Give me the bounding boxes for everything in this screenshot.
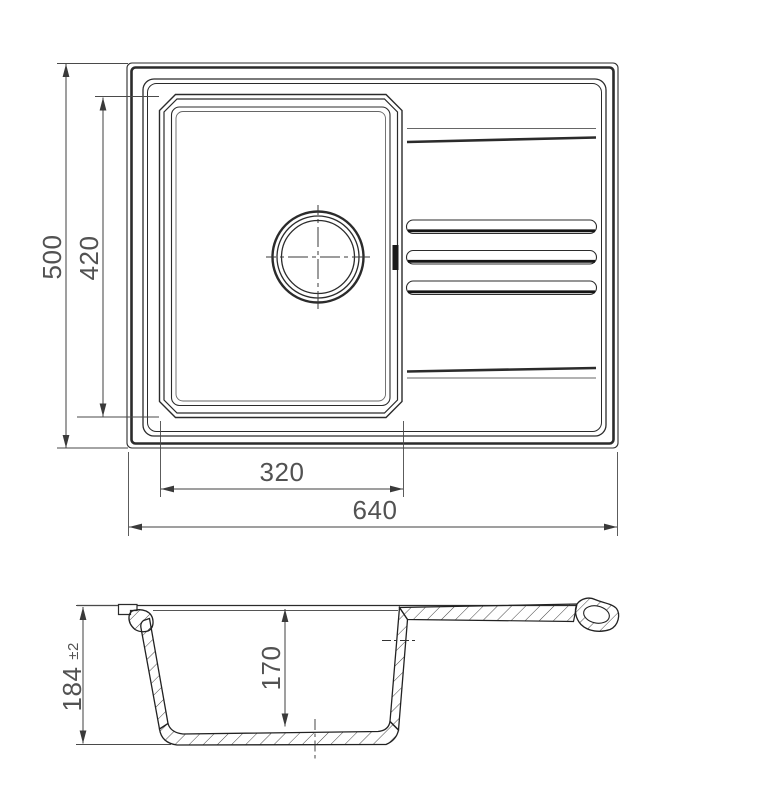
dim-label-500: 500 [37,235,67,280]
arrowhead [100,98,107,111]
arrowhead [80,731,87,744]
section-view: 184 ±2 170 [57,598,619,759]
arrowhead [282,714,289,727]
sink-technical-drawing: 500 420 320 640 [0,0,764,800]
arrowhead [80,607,87,620]
sink-outer-edge [127,63,618,448]
dim-label-184: 184 [57,667,87,712]
dim-320: 320 [161,421,404,497]
arrowhead [63,64,70,77]
bowl-left-wall [141,619,168,730]
arrowhead [63,435,70,448]
dim-label-320: 320 [260,457,305,487]
dim-label-640: 640 [353,495,398,525]
bowl-right-wall [390,608,408,731]
bowl-outline [160,95,403,418]
dim-label-420: 420 [74,236,104,281]
arrowhead [100,404,107,417]
drawing-canvas: 500 420 320 640 [0,0,764,800]
drain-hole [266,205,370,309]
drainboard-grooves [396,220,597,295]
arrowhead [604,524,617,531]
drainboard-section [400,598,619,631]
arrowhead [161,486,174,493]
dim-label-170: 170 [256,646,286,691]
dim-170: 170 [256,609,288,727]
drainboard-slope-lines [407,129,596,379]
dim-640: 640 [129,452,618,536]
deck-inner-rim [143,79,606,436]
dim-label-tolerance: ±2 [65,642,82,660]
bowl-bottom [160,722,399,746]
arrowhead [390,486,403,493]
top-view: 500 420 320 640 [37,63,618,536]
arrowhead [129,524,142,531]
dim-420: 420 [74,97,159,418]
